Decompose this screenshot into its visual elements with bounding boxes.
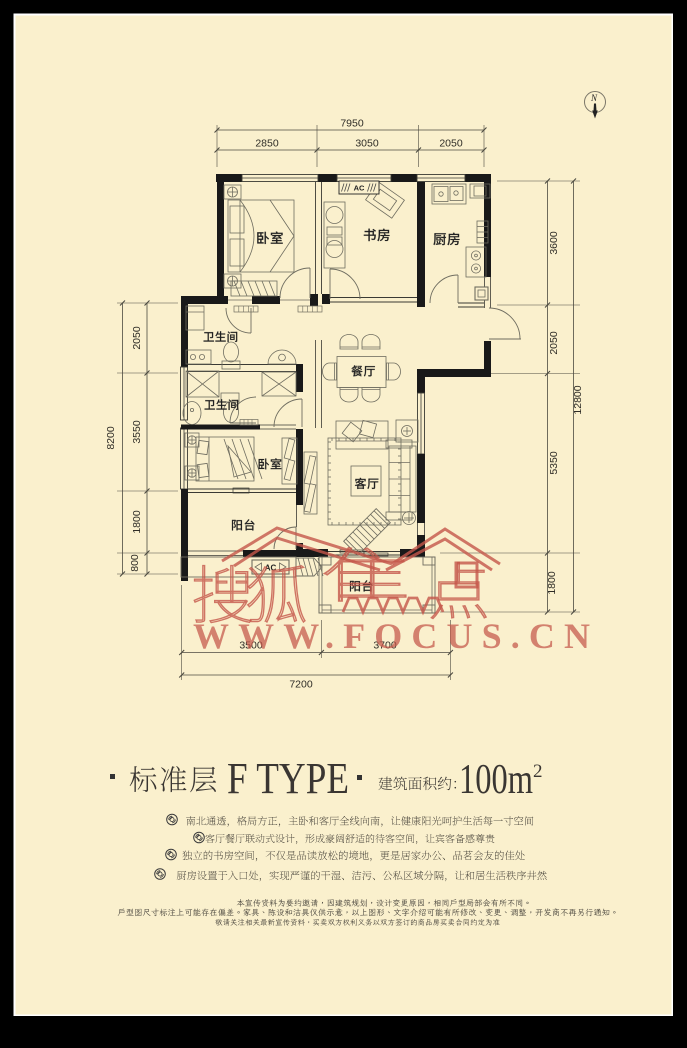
svg-text:AC: AC bbox=[354, 184, 365, 193]
svg-text:3050: 3050 bbox=[355, 138, 379, 150]
svg-text:8200: 8200 bbox=[105, 426, 117, 450]
svg-text:800: 800 bbox=[129, 554, 141, 572]
svg-text:WWW.FOCUS.CN: WWW.FOCUS.CN bbox=[193, 616, 590, 656]
svg-text:7950: 7950 bbox=[340, 118, 364, 130]
svg-text:N: N bbox=[590, 93, 598, 103]
svg-text:2850: 2850 bbox=[255, 138, 279, 150]
svg-text:100m: 100m bbox=[459, 757, 533, 803]
svg-text:1800: 1800 bbox=[131, 510, 143, 534]
svg-text:1800: 1800 bbox=[546, 571, 558, 595]
svg-text:5350: 5350 bbox=[548, 451, 560, 475]
svg-text:2: 2 bbox=[533, 761, 543, 782]
svg-text:2050: 2050 bbox=[548, 331, 560, 355]
svg-text:3600: 3600 bbox=[548, 231, 560, 255]
svg-text:F TYPE: F TYPE bbox=[227, 754, 349, 803]
svg-text:12800: 12800 bbox=[572, 385, 584, 414]
svg-text:7200: 7200 bbox=[289, 679, 313, 691]
svg-text:2050: 2050 bbox=[439, 138, 463, 150]
svg-text:2050: 2050 bbox=[131, 326, 143, 350]
svg-text:3550: 3550 bbox=[131, 420, 143, 444]
